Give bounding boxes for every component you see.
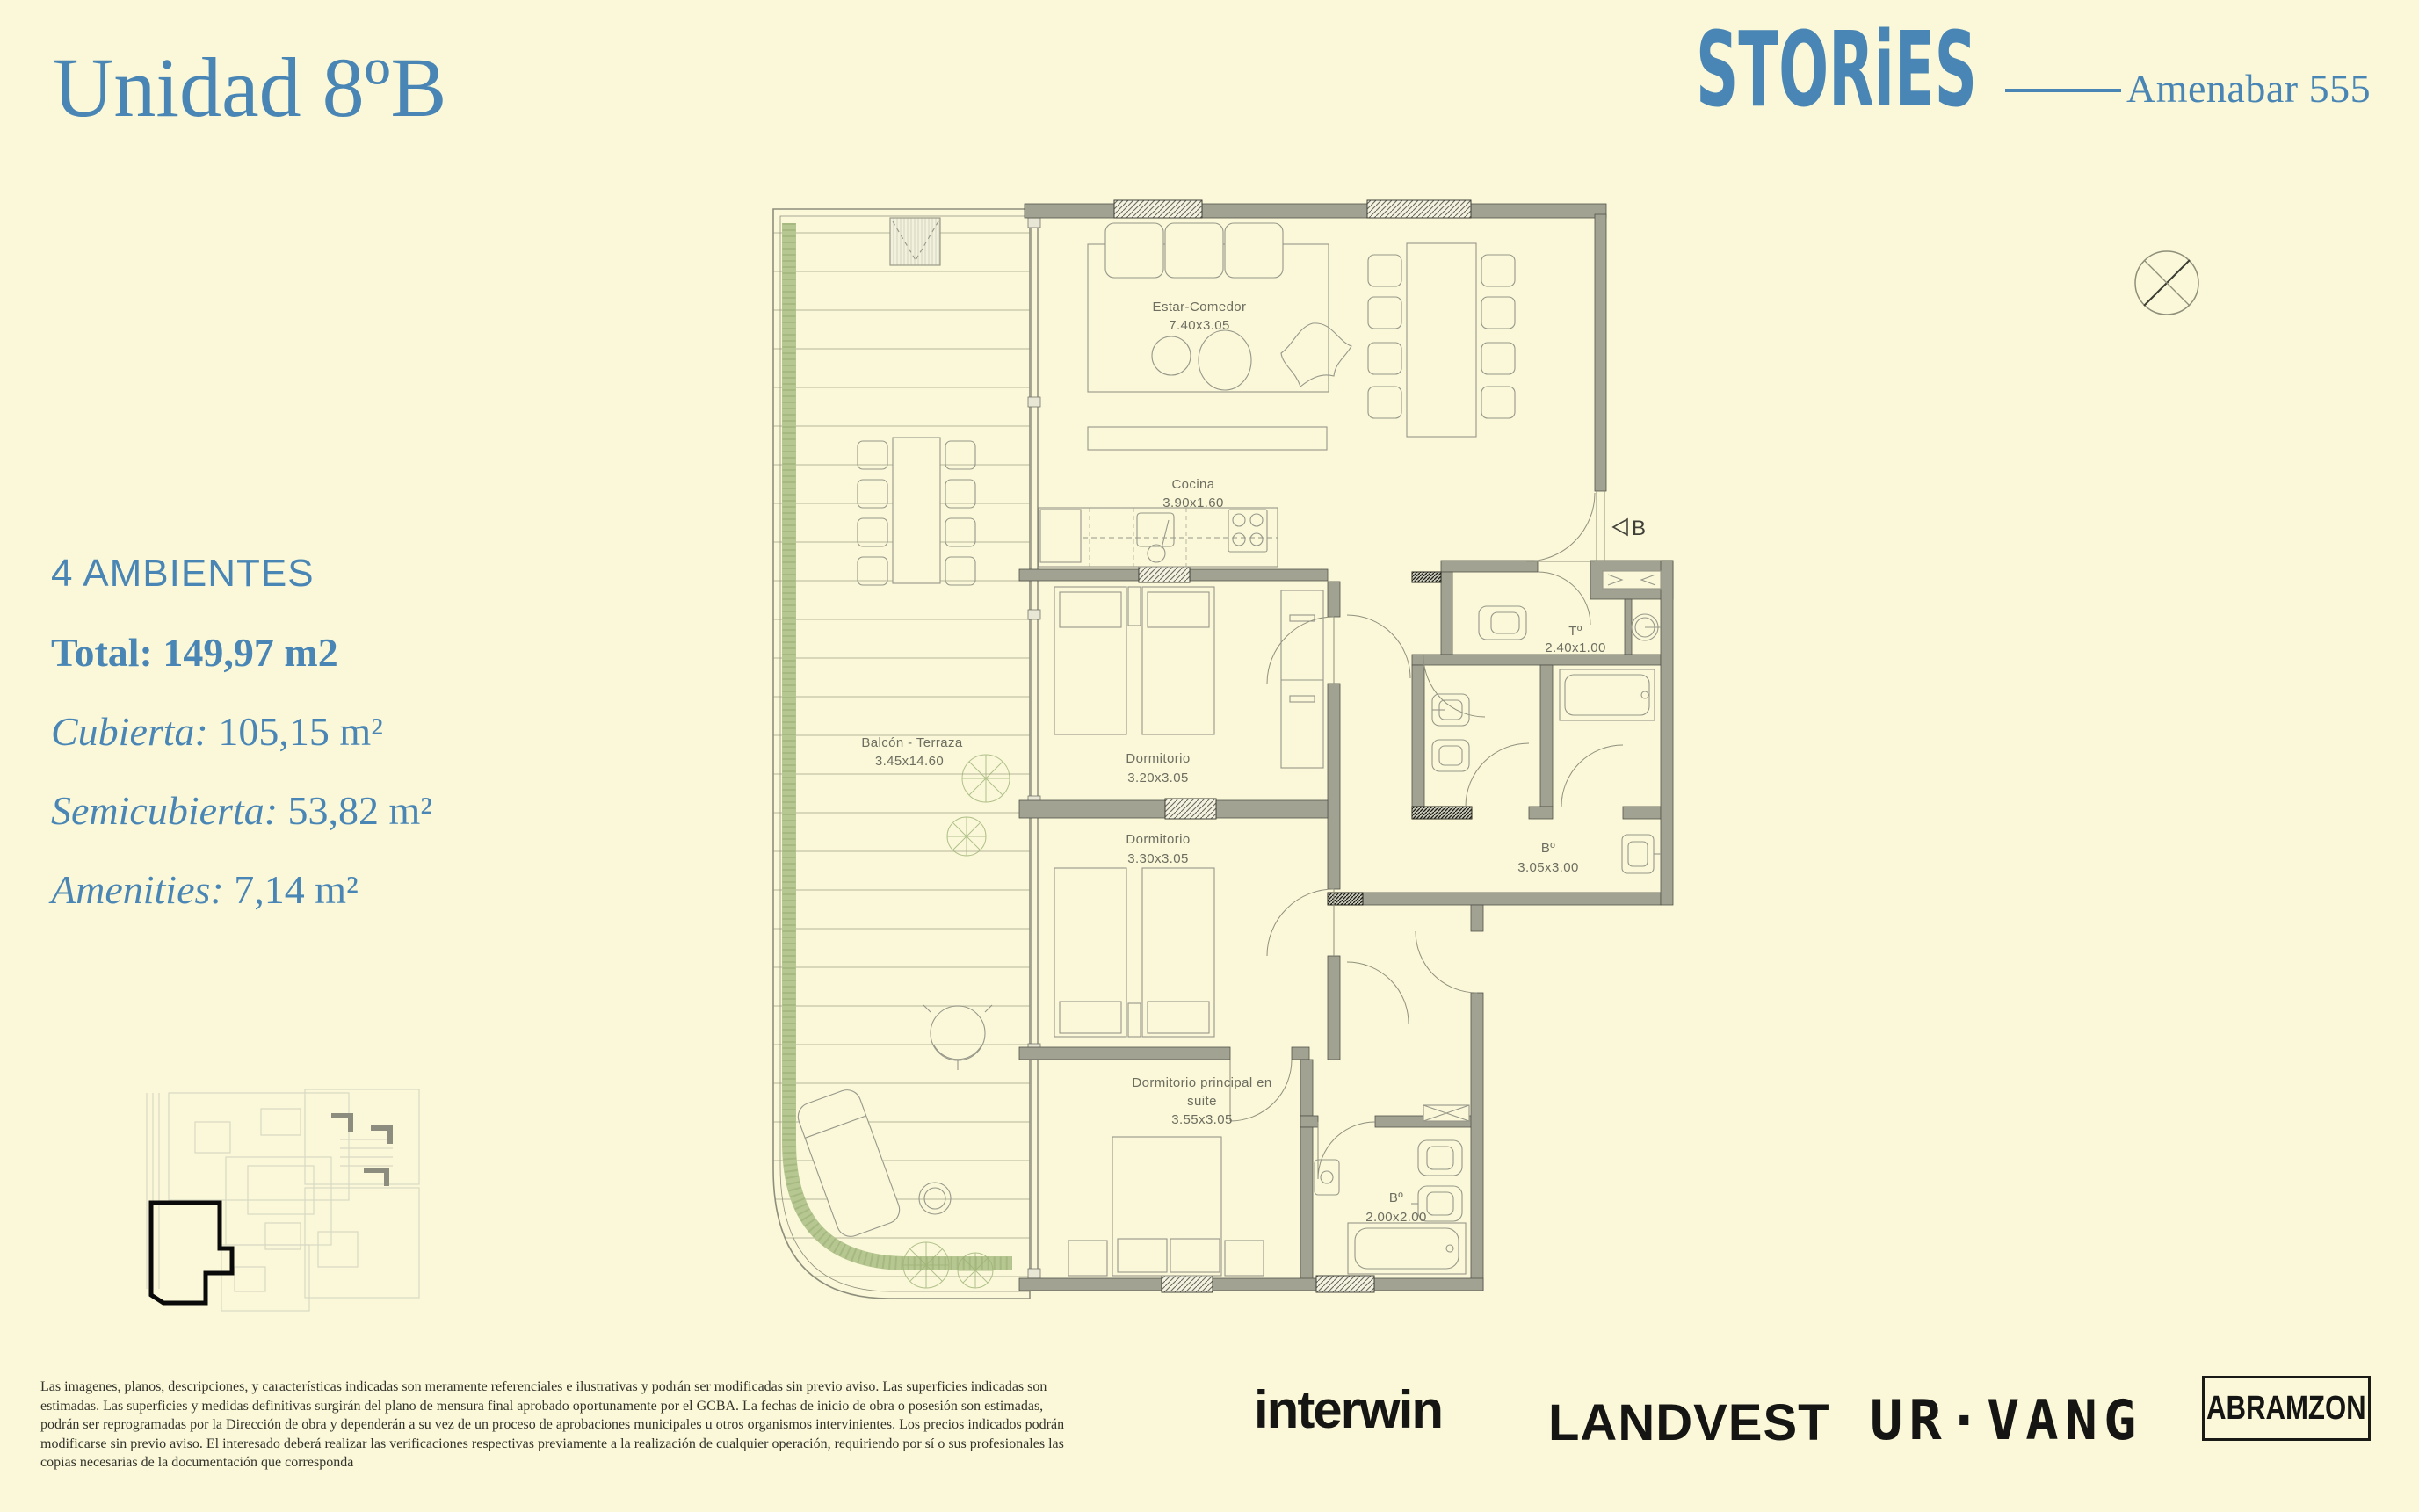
hall-closet bbox=[1423, 1105, 1469, 1121]
balcony-terrace: Balcón - Terraza 3.45x14.60 bbox=[773, 209, 1030, 1299]
semicovered-area: Semicubierta: 53,82 m² bbox=[51, 787, 432, 834]
total-value: 149,97 m2 bbox=[163, 630, 337, 675]
brand-logo-text: STORiES bbox=[1696, 12, 1977, 130]
skylight-vent bbox=[890, 218, 940, 265]
abramzon-logo: ABRAMZON bbox=[2202, 1376, 2371, 1441]
bathroom-label: Bº bbox=[1541, 841, 1555, 856]
semicovered-value: 53,82 m² bbox=[288, 788, 433, 833]
fridge bbox=[1040, 510, 1081, 562]
living-room-furniture bbox=[1088, 223, 1515, 450]
plant bbox=[947, 817, 986, 856]
bedroom1-label: Dormitorio bbox=[1126, 751, 1190, 766]
key-plan-unit-outline bbox=[151, 1203, 232, 1303]
page-title: Unidad 8ºB bbox=[53, 46, 446, 130]
entry-marker: B bbox=[1613, 517, 1646, 540]
balcony-label: Balcón - Terraza bbox=[861, 735, 963, 750]
stove bbox=[1228, 510, 1267, 552]
ensuite-dims: 2.00x2.00 bbox=[1365, 1210, 1427, 1225]
amenities-value: 7,14 m² bbox=[234, 867, 359, 912]
floor-plan: Balcón - Terraza 3.45x14.60 bbox=[747, 184, 1687, 1318]
bedroom1-dims: 3.20x3.05 bbox=[1127, 770, 1189, 785]
brand-logo: STORiES bbox=[1694, 12, 1993, 135]
ensuite-bathtub bbox=[1348, 1223, 1466, 1274]
bedroom1-furniture bbox=[1054, 587, 1323, 768]
door-arcs bbox=[1230, 491, 1623, 1179]
bedroom2-dims: 3.30x3.05 bbox=[1127, 851, 1189, 866]
covered-label: Cubierta: bbox=[51, 709, 208, 754]
ensuite-fixtures bbox=[1315, 1105, 1469, 1274]
master-bedroom-furniture bbox=[1068, 1137, 1264, 1276]
brand-divider-line bbox=[2005, 89, 2121, 92]
living-label: Estar-Comedor bbox=[1153, 300, 1247, 315]
abramzon-logo-text: ABRAMZON bbox=[2206, 1390, 2366, 1428]
rooms-count: 4 AMBIENTES bbox=[51, 552, 315, 596]
key-plan-core bbox=[331, 1116, 390, 1186]
master-label-1: Dormitorio principal en bbox=[1132, 1075, 1271, 1090]
compass-icon bbox=[2125, 239, 2213, 327]
covered-value: 105,15 m² bbox=[218, 709, 383, 754]
plant bbox=[962, 755, 1010, 802]
round-sink bbox=[1632, 614, 1661, 640]
bath-sink bbox=[1622, 835, 1661, 873]
entry-marker-letter: B bbox=[1632, 517, 1646, 540]
bathroom-dims: 3.05x3.00 bbox=[1517, 860, 1579, 875]
key-plan-building bbox=[147, 1089, 419, 1311]
wardrobe bbox=[1281, 590, 1323, 768]
toilette-label: Tº bbox=[1568, 624, 1582, 639]
master-label-2: suite bbox=[1187, 1094, 1217, 1109]
urvang-logo: UR·VANG bbox=[1870, 1388, 2142, 1452]
plant bbox=[903, 1242, 949, 1288]
kitchen-label: Cocina bbox=[1171, 477, 1214, 492]
bathtub bbox=[1560, 669, 1655, 720]
master-dims: 3.55x3.05 bbox=[1171, 1112, 1233, 1127]
bedroom2-label: Dormitorio bbox=[1126, 832, 1190, 847]
plant bbox=[958, 1253, 993, 1288]
walls bbox=[1019, 204, 1673, 1291]
living-dims: 7.40x3.05 bbox=[1169, 318, 1230, 333]
toilette-dims: 2.40x1.00 bbox=[1545, 640, 1606, 655]
total-label: Total: bbox=[51, 630, 153, 675]
amenities-label: Amenities: bbox=[51, 867, 224, 912]
bedroom2-furniture bbox=[1054, 868, 1214, 1037]
covered-area: Cubierta: 105,15 m² bbox=[51, 708, 383, 755]
entry-closet bbox=[1603, 571, 1661, 589]
kitchen-dims: 3.90x1.60 bbox=[1162, 496, 1224, 510]
key-plan bbox=[81, 1082, 494, 1372]
plant-indoor bbox=[1281, 323, 1351, 387]
amenities-area: Amenities: 7,14 m² bbox=[51, 866, 359, 913]
total-area: Total: 149,97 m2 bbox=[51, 629, 338, 676]
landvest-logo: LANDVEST bbox=[1548, 1393, 1830, 1452]
project-name: Amenabar 555 bbox=[2126, 65, 2371, 112]
legal-disclaimer: Las imagenes, planos, descripciones, y c… bbox=[40, 1378, 1073, 1472]
semicovered-label: Semicubierta: bbox=[51, 788, 278, 833]
balcony-dims: 3.45x14.60 bbox=[875, 754, 944, 769]
room-labels: Estar-Comedor 7.40x3.05 Cocina 3.90x1.60… bbox=[1126, 300, 1605, 1225]
interwin-logo: interwin bbox=[1254, 1379, 1442, 1440]
kitchen-counter bbox=[1039, 508, 1278, 567]
ensuite-label: Bº bbox=[1389, 1190, 1403, 1205]
